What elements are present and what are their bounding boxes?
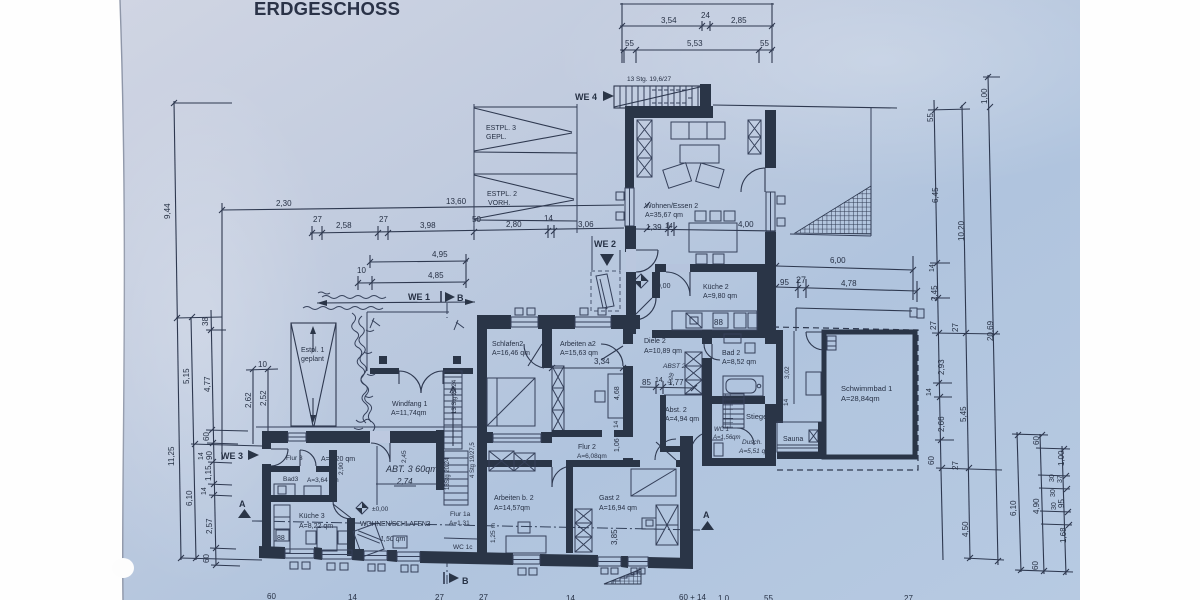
svg-text:6,10: 6,10 bbox=[185, 490, 194, 506]
svg-text:60: 60 bbox=[202, 432, 211, 441]
svg-text:27: 27 bbox=[796, 275, 806, 285]
svg-text:4,90: 4,90 bbox=[1032, 498, 1041, 514]
svg-text:WE 3: WE 3 bbox=[221, 451, 243, 461]
svg-text:2,80: 2,80 bbox=[506, 220, 522, 229]
svg-text:A=28,84qm: A=28,84qm bbox=[841, 394, 880, 403]
svg-text:WC 1: WC 1 bbox=[714, 427, 729, 433]
svg-text:5,45: 5,45 bbox=[959, 406, 968, 422]
svg-text:6,00: 6,00 bbox=[830, 256, 846, 265]
svg-text:±0,00: ±0,00 bbox=[372, 506, 389, 513]
svg-text:2,66: 2,66 bbox=[937, 416, 946, 432]
svg-text:2,74: 2,74 bbox=[396, 477, 413, 486]
svg-text:A: A bbox=[703, 510, 710, 520]
svg-text:55: 55 bbox=[926, 113, 935, 122]
svg-text:14: 14 bbox=[783, 398, 790, 406]
svg-text:1,06: 1,06 bbox=[614, 438, 621, 452]
svg-text:4,77: 4,77 bbox=[203, 376, 212, 392]
svg-text:Bad3: Bad3 bbox=[283, 476, 299, 483]
svg-text:2,52: 2,52 bbox=[259, 390, 268, 406]
svg-text:55: 55 bbox=[625, 39, 634, 48]
svg-text:4 Stg 19/27,5: 4 Stg 19/27,5 bbox=[470, 442, 476, 478]
svg-text:27: 27 bbox=[435, 593, 444, 600]
svg-text:A=14,57qm: A=14,57qm bbox=[494, 505, 530, 512]
svg-text:A=16,46 qm: A=16,46 qm bbox=[492, 350, 530, 357]
svg-text:4,95: 4,95 bbox=[432, 250, 448, 259]
svg-text:1,77: 1,77 bbox=[668, 378, 684, 387]
svg-text:38: 38 bbox=[201, 317, 210, 326]
svg-text:3,34: 3,34 bbox=[594, 357, 610, 366]
svg-text:A=15,63 qm: A=15,63 qm bbox=[560, 350, 598, 357]
svg-text:ABST 2: ABST 2 bbox=[662, 363, 686, 370]
svg-text:Bad 2: Bad 2 bbox=[722, 350, 740, 357]
svg-text:20,69: 20,69 bbox=[986, 320, 995, 341]
svg-text:1,39: 1,39 bbox=[646, 223, 662, 232]
svg-text:60 + 14: 60 + 14 bbox=[679, 593, 706, 600]
svg-text:14: 14 bbox=[926, 388, 933, 396]
svg-text:14: 14 bbox=[198, 452, 205, 460]
svg-text:2,85: 2,85 bbox=[731, 16, 747, 25]
svg-text:Windfang 1: Windfang 1 bbox=[392, 401, 428, 408]
svg-text:4,00: 4,00 bbox=[738, 220, 754, 229]
svg-text:95: 95 bbox=[780, 278, 789, 287]
svg-text:88: 88 bbox=[714, 318, 723, 327]
svg-text:Estpl. 1: Estpl. 1 bbox=[301, 347, 324, 354]
svg-text:Wohnen/Essen 2: Wohnen/Essen 2 bbox=[645, 203, 698, 210]
svg-text:Sauna: Sauna bbox=[783, 436, 803, 443]
svg-text:90: 90 bbox=[205, 451, 214, 460]
svg-text:3,06: 3,06 bbox=[578, 220, 594, 229]
svg-text:WC 1c: WC 1c bbox=[453, 544, 473, 551]
svg-text:Gast 2: Gast 2 bbox=[599, 495, 620, 502]
svg-text:WE 4: WE 4 bbox=[575, 92, 597, 102]
svg-text:27: 27 bbox=[313, 215, 322, 224]
svg-text:3,02: 3,02 bbox=[784, 366, 791, 379]
svg-text:5,15: 5,15 bbox=[182, 368, 191, 384]
svg-text:60: 60 bbox=[1032, 436, 1041, 445]
svg-text:10,20: 10,20 bbox=[957, 220, 966, 241]
svg-text:1,00: 1,00 bbox=[1057, 450, 1066, 466]
svg-text:60: 60 bbox=[1031, 561, 1040, 570]
svg-text:60: 60 bbox=[267, 592, 276, 600]
svg-text:14: 14 bbox=[348, 593, 357, 600]
svg-text:24: 24 bbox=[701, 11, 710, 20]
svg-text:WE 2: WE 2 bbox=[594, 239, 616, 249]
svg-text:2,45: 2,45 bbox=[401, 450, 408, 463]
svg-text:30: 30 bbox=[1049, 474, 1056, 482]
svg-text:A=3,20 qm: A=3,20 qm bbox=[321, 456, 355, 463]
svg-text:30: 30 bbox=[1050, 489, 1057, 497]
svg-text:VORH.: VORH. bbox=[488, 200, 510, 207]
svg-text:Schwimmbad 1: Schwimmbad 1 bbox=[841, 384, 892, 393]
svg-text:geplant: geplant bbox=[301, 356, 324, 363]
svg-text:27: 27 bbox=[951, 323, 960, 332]
svg-text:GEPL.: GEPL. bbox=[486, 134, 507, 141]
svg-text:Flur 2: Flur 2 bbox=[578, 444, 596, 451]
svg-text:1,15: 1,15 bbox=[204, 465, 213, 481]
svg-text:14: 14 bbox=[665, 223, 673, 230]
svg-text:A: A bbox=[239, 499, 246, 509]
svg-text:2,90: 2,90 bbox=[338, 462, 345, 475]
svg-text:4,68: 4,68 bbox=[614, 386, 621, 400]
svg-text:A=11,74qm: A=11,74qm bbox=[391, 410, 427, 417]
svg-text:3,85: 3,85 bbox=[610, 529, 619, 545]
svg-text:2,57: 2,57 bbox=[205, 518, 214, 534]
svg-text:27: 27 bbox=[951, 461, 960, 470]
svg-text:85: 85 bbox=[642, 378, 651, 387]
svg-text:A=9,80 qm: A=9,80 qm bbox=[703, 293, 737, 300]
svg-text:13Stg 20/24: 13Stg 20/24 bbox=[445, 457, 451, 490]
svg-text:55: 55 bbox=[764, 594, 773, 600]
svg-text:10: 10 bbox=[357, 266, 366, 275]
svg-text:4,85: 4,85 bbox=[428, 271, 444, 280]
svg-text:6,10: 6,10 bbox=[1009, 500, 1018, 516]
svg-text:Dusch.: Dusch. bbox=[742, 439, 762, 446]
svg-text:95: 95 bbox=[1057, 499, 1066, 508]
svg-text:A=1,31: A=1,31 bbox=[449, 520, 470, 527]
svg-text:A=16,94 qm: A=16,94 qm bbox=[599, 505, 637, 512]
svg-text:WOHNEN/SCHLAFEN3: WOHNEN/SCHLAFEN3 bbox=[360, 521, 431, 528]
svg-text:5,53: 5,53 bbox=[687, 39, 703, 48]
svg-text:ABT. 3 60qm: ABT. 3 60qm bbox=[385, 464, 438, 474]
svg-text:14: 14 bbox=[566, 594, 575, 600]
svg-text:A=10,89 qm: A=10,89 qm bbox=[644, 348, 682, 355]
svg-text:13 Stg. 19,6/27: 13 Stg. 19,6/27 bbox=[627, 76, 671, 83]
svg-text:Diele 2: Diele 2 bbox=[644, 338, 666, 345]
svg-text:27: 27 bbox=[379, 215, 388, 224]
svg-text:Flur 1a: Flur 1a bbox=[450, 511, 471, 518]
svg-text:Abst. 2: Abst. 2 bbox=[665, 407, 687, 414]
svg-text:14: 14 bbox=[655, 377, 663, 384]
svg-text:Küche 2: Küche 2 bbox=[703, 284, 729, 291]
svg-text:Küche 3: Küche 3 bbox=[299, 513, 325, 520]
svg-text:A=8,52 qm: A=8,52 qm bbox=[722, 359, 756, 366]
svg-text:Arbeiten b. 2: Arbeiten b. 2 bbox=[494, 495, 534, 502]
svg-text:1,68: 1,68 bbox=[1059, 527, 1068, 543]
svg-text:55: 55 bbox=[760, 39, 769, 48]
svg-text:1,25 m: 1,25 m bbox=[490, 523, 497, 543]
svg-text:2,62: 2,62 bbox=[244, 392, 253, 408]
svg-text:3,54: 3,54 bbox=[661, 16, 677, 25]
svg-text:1,00: 1,00 bbox=[980, 88, 989, 104]
svg-text:4,50: 4,50 bbox=[961, 521, 970, 537]
svg-text:A=6,08qm: A=6,08qm bbox=[577, 453, 607, 460]
svg-text:B: B bbox=[462, 576, 469, 586]
svg-text:14: 14 bbox=[201, 487, 208, 495]
svg-text:27: 27 bbox=[929, 321, 938, 330]
svg-text:9,44: 9,44 bbox=[163, 203, 172, 219]
svg-text:WE 1: WE 1 bbox=[408, 292, 430, 302]
svg-text:11,25: 11,25 bbox=[167, 446, 176, 466]
svg-text:14: 14 bbox=[544, 214, 553, 223]
svg-text:37: 37 bbox=[1057, 475, 1064, 483]
svg-text:ESTPL. 3: ESTPL. 3 bbox=[486, 125, 516, 132]
svg-text:2,30: 2,30 bbox=[276, 199, 292, 208]
svg-text:ESTPL. 2: ESTPL. 2 bbox=[487, 191, 517, 198]
svg-text:10: 10 bbox=[258, 360, 267, 369]
svg-text:B: B bbox=[457, 293, 464, 303]
svg-text:27: 27 bbox=[479, 593, 488, 600]
svg-text:3,98: 3,98 bbox=[420, 221, 436, 230]
svg-text:Arbeiten a2: Arbeiten a2 bbox=[560, 341, 596, 348]
svg-text:27: 27 bbox=[904, 594, 913, 600]
svg-text:ERDGESCHOSS: ERDGESCHOSS bbox=[254, 0, 400, 19]
svg-text:4,78: 4,78 bbox=[841, 279, 857, 288]
svg-text:A=35,67 qm: A=35,67 qm bbox=[645, 212, 683, 219]
svg-text:14: 14 bbox=[929, 264, 936, 272]
svg-text:2,45: 2,45 bbox=[930, 285, 939, 301]
svg-text:13,60: 13,60 bbox=[446, 197, 467, 206]
svg-text:Stiege: Stiege bbox=[746, 412, 767, 421]
svg-text:1,0: 1,0 bbox=[718, 594, 730, 600]
svg-text:88: 88 bbox=[277, 535, 285, 542]
svg-text:14: 14 bbox=[613, 420, 620, 428]
svg-text:60: 60 bbox=[927, 456, 936, 465]
svg-text:60: 60 bbox=[202, 554, 211, 563]
svg-text:6,45: 6,45 bbox=[931, 187, 940, 203]
svg-text:2,58: 2,58 bbox=[336, 221, 352, 230]
svg-text:Schlafen2: Schlafen2 bbox=[492, 341, 523, 348]
svg-text:2,93: 2,93 bbox=[937, 359, 946, 375]
svg-text:A=4,94 qm: A=4,94 qm bbox=[665, 416, 699, 423]
